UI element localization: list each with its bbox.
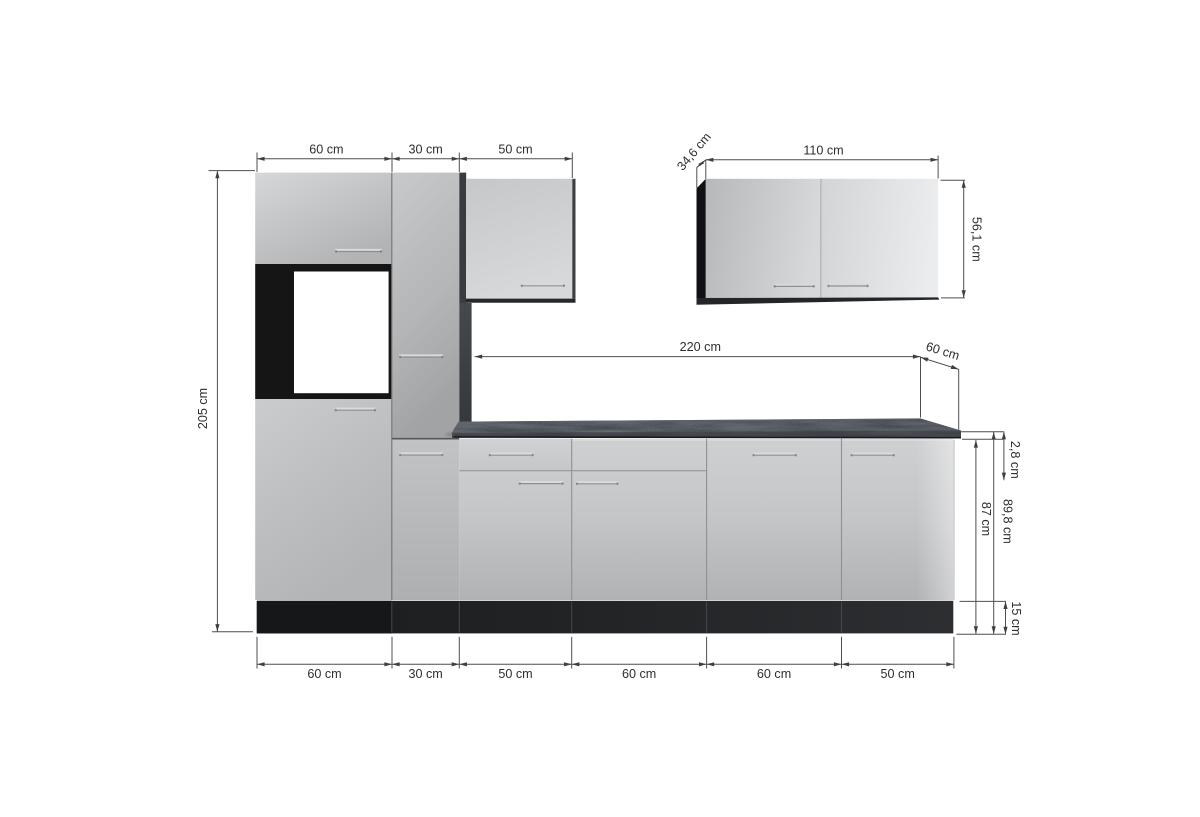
svg-text:110 cm: 110 cm: [803, 144, 843, 158]
svg-text:30 cm: 30 cm: [409, 667, 443, 681]
svg-text:50 cm: 50 cm: [498, 667, 532, 681]
svg-text:60 cm: 60 cm: [757, 667, 791, 681]
svg-text:2,8 cm: 2,8 cm: [1008, 441, 1022, 479]
svg-text:89,8 cm: 89,8 cm: [1001, 499, 1015, 544]
svg-text:30 cm: 30 cm: [408, 143, 442, 157]
svg-text:60 cm: 60 cm: [307, 667, 341, 681]
svg-text:60 cm: 60 cm: [622, 667, 656, 681]
svg-text:15 cm: 15 cm: [1009, 601, 1023, 635]
svg-text:56,1 cm: 56,1 cm: [969, 217, 983, 262]
svg-text:220 cm: 220 cm: [680, 340, 721, 354]
svg-text:34,6 cm: 34,6 cm: [674, 130, 714, 173]
svg-text:205 cm: 205 cm: [196, 388, 210, 429]
svg-text:60 cm: 60 cm: [924, 339, 961, 362]
svg-text:50 cm: 50 cm: [881, 667, 915, 681]
svg-text:87 cm: 87 cm: [979, 502, 993, 536]
svg-text:60 cm: 60 cm: [309, 143, 343, 157]
svg-text:50 cm: 50 cm: [498, 143, 532, 157]
